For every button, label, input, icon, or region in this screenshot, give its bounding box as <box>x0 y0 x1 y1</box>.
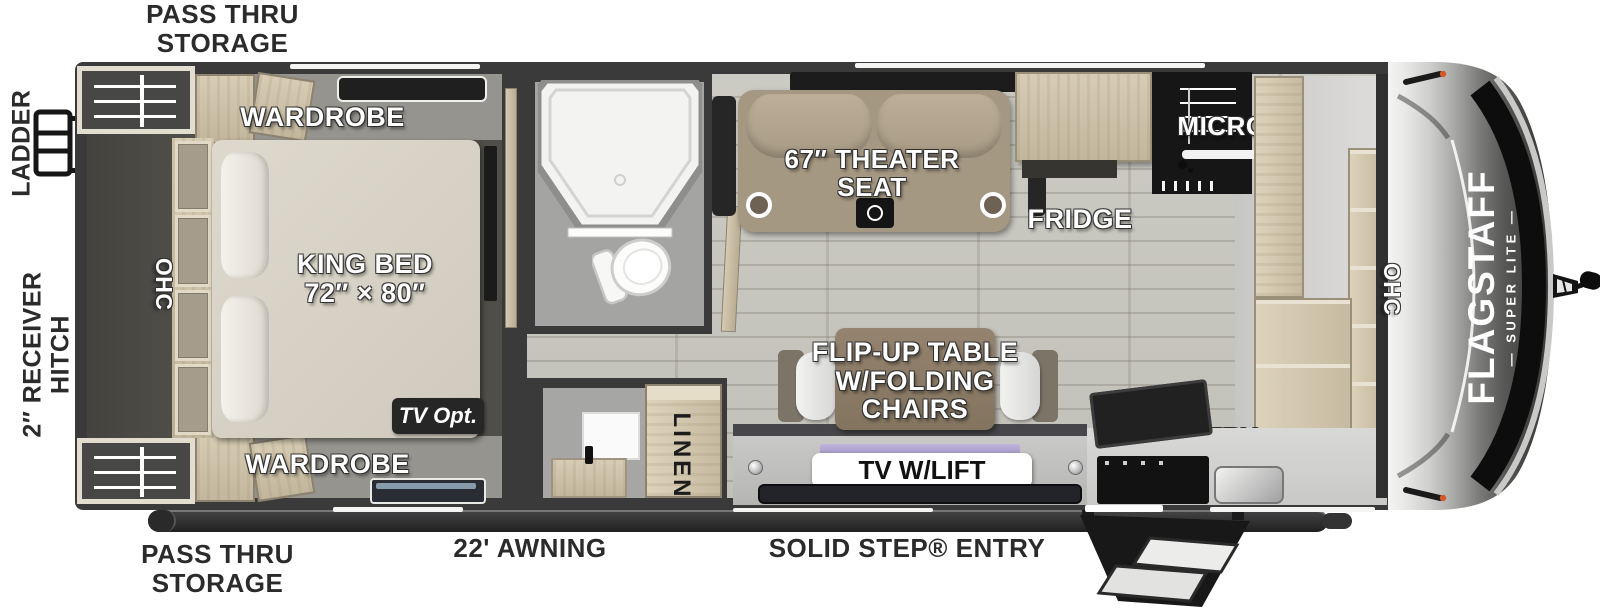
solid-step-entry-label: SOLID STEP® ENTRY <box>757 534 1057 563</box>
vanity-cabinet <box>551 458 627 498</box>
cooktop-knobs <box>1105 461 1175 465</box>
theater-seat-line1: 67″ THEATER <box>762 146 982 174</box>
ohc-bedroom-label: OHC <box>152 254 176 314</box>
cooktop <box>1097 456 1209 504</box>
pass-thru-box-bottom <box>77 438 195 504</box>
entry-threshold <box>1085 505 1163 512</box>
tv-opt-label: TV Opt. <box>399 403 477 429</box>
pass-thru-bottom-line1: PASS THRU <box>125 540 310 569</box>
marker-light-lens <box>1440 495 1446 501</box>
seat-console <box>856 198 894 228</box>
cabinet-knob-icon <box>748 460 763 475</box>
vanity-faucet-icon <box>585 446 593 464</box>
pass-thru-box-top <box>77 66 195 134</box>
solid-step-icon <box>1060 500 1270 609</box>
shower-icon <box>538 80 702 240</box>
bedroom-skylight-window <box>337 76 487 102</box>
bottom-wall-trim <box>333 507 463 512</box>
front-cap: FLAGSTAFF — SUPER LITE — <box>1330 50 1600 520</box>
bedroom-sliding-door <box>505 88 517 328</box>
tv-opt-badge: TV Opt. <box>392 398 484 434</box>
top-wall-trim <box>855 63 1205 68</box>
bedroom-tv <box>484 146 497 301</box>
pass-thru-bottom-line2: STORAGE <box>125 569 310 598</box>
marker-light-lens <box>1440 71 1446 77</box>
fridge-cabinet-shadow <box>1022 160 1117 178</box>
hitch-handle <box>1578 270 1600 292</box>
drawer <box>175 290 211 361</box>
hanger-post-icon <box>140 75 144 127</box>
hanger-rod-icon <box>94 85 176 88</box>
king-bed-label: KING BED 72″ × 80″ <box>255 250 475 307</box>
tv-lift-label: TV W/LIFT <box>858 455 985 486</box>
side-table-left <box>712 96 736 216</box>
rv-floorplan: PASS THRU STORAGE LADDER 2″ RECEIVER HIT… <box>0 0 1600 609</box>
pass-thru-top-line1: PASS THRU <box>130 0 315 29</box>
kitchen-shelf <box>1182 150 1264 159</box>
wardrobe-top-label: WARDROBE <box>230 103 415 132</box>
flip-table-label: FLIP-UP TABLE W/FOLDING CHAIRS <box>785 338 1045 424</box>
cabinet-knob-icon <box>1068 460 1083 475</box>
utensil-ticks-icon <box>1162 181 1218 191</box>
console-control-icon <box>867 205 883 221</box>
theater-seat-line2: SEAT <box>762 174 982 202</box>
bottom-wall-trim <box>733 508 933 512</box>
pass-thru-storage-label-bottom: PASS THRU STORAGE <box>125 540 310 597</box>
linen-cabinet-top-face <box>647 386 720 400</box>
fridge-cabinet <box>1015 72 1152 162</box>
hanger-rod-icon <box>94 115 176 118</box>
top-wall-trim <box>290 64 480 69</box>
tv-lift-pill: TV W/LIFT <box>812 453 1032 488</box>
bed-pillow <box>221 296 269 422</box>
window-glass <box>376 483 476 489</box>
toilet-icon <box>592 232 676 312</box>
flip-table-line3: CHAIRS <box>785 395 1045 424</box>
awning-bar-end-cap <box>148 510 176 532</box>
receiver-hitch-label: 2″ RECEIVER HITCH <box>20 230 75 480</box>
flip-table-line2: W/FOLDING <box>785 367 1045 396</box>
theater-seat-label: 67″ THEATER SEAT <box>762 146 982 201</box>
brand-subtitle: — SUPER LITE — <box>1503 208 1518 367</box>
theater-window <box>790 72 1040 92</box>
awning-label: 22' AWNING <box>430 534 630 563</box>
ladder-icon <box>28 106 82 186</box>
king-bed-line1: KING BED <box>255 250 475 279</box>
pass-thru-top-line2: STORAGE <box>130 29 315 58</box>
hanger-rod-icon <box>94 471 176 474</box>
drawer <box>175 215 211 286</box>
drawer <box>175 364 211 435</box>
ohc-front-label: OHC <box>1380 259 1404 319</box>
bedroom-bottom-window <box>370 478 486 504</box>
wardrobe-bottom-label: WARDROBE <box>235 450 420 479</box>
brand-name: FLAGSTAFF <box>1461 169 1502 404</box>
hanger-post-icon <box>140 447 144 497</box>
pass-thru-storage-label-top: PASS THRU STORAGE <box>130 0 315 57</box>
fridge-label: FRIDGE <box>1020 205 1140 234</box>
king-bed-line2: 72″ × 80″ <box>255 279 475 308</box>
linen-label: LINEN <box>667 401 695 511</box>
drawer <box>175 141 211 212</box>
hanger-rod-icon <box>94 100 176 103</box>
galley-cabinet-upper <box>1254 76 1304 298</box>
kitchen-faucet-icon <box>1178 160 1187 169</box>
hanger-rod-icon <box>94 456 176 459</box>
hanger-rod-icon <box>94 486 176 489</box>
flip-table-line1: FLIP-UP TABLE <box>785 338 1045 367</box>
tv-screen-flat <box>758 484 1082 504</box>
cupholder-icon <box>980 192 1006 218</box>
kitchen-sink <box>1214 466 1284 504</box>
headboard-drawer-stack <box>172 138 214 438</box>
